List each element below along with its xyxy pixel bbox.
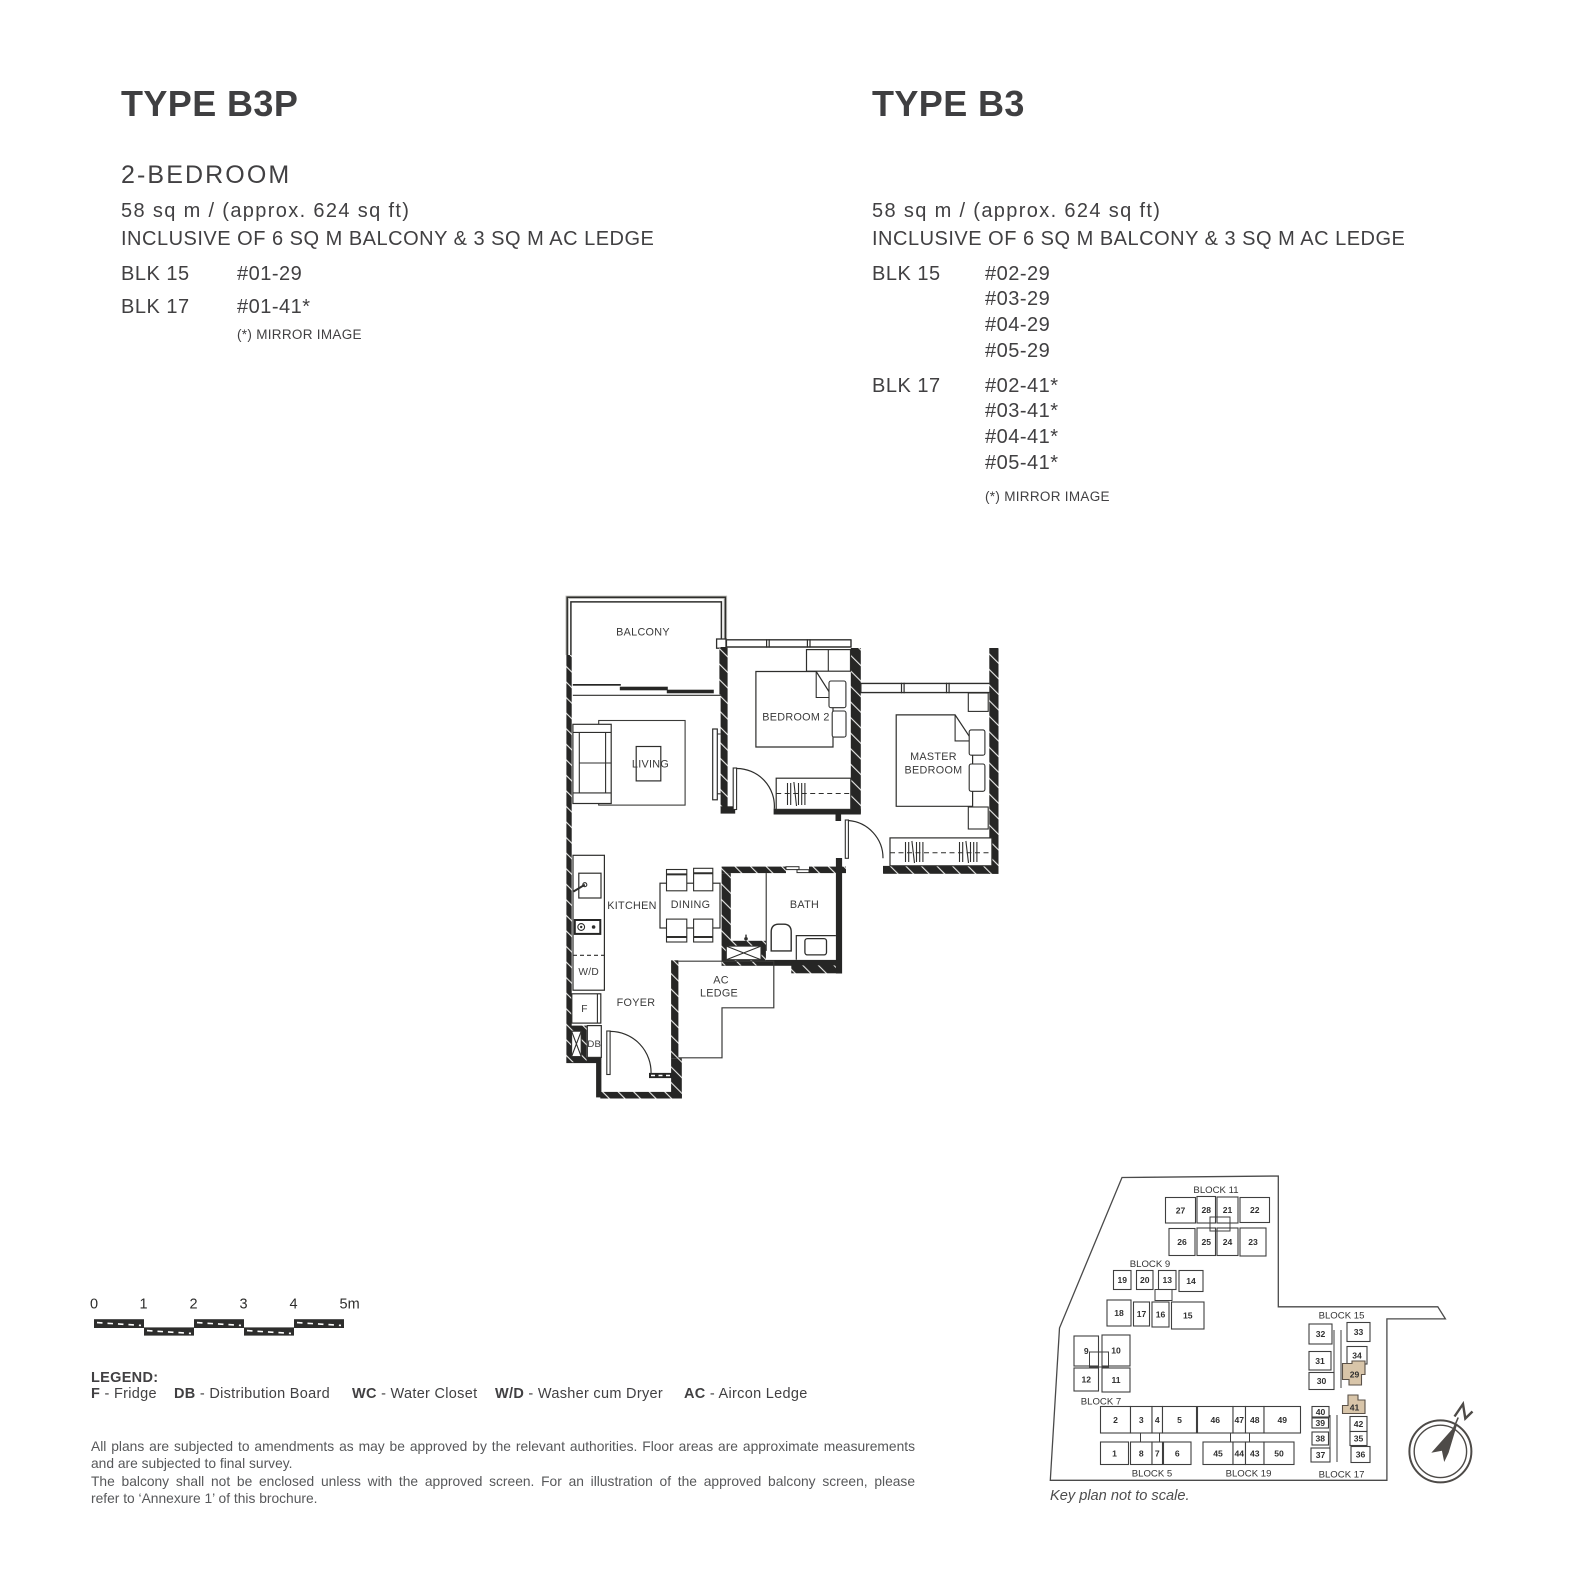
svg-text:37: 37 [1316,1450,1326,1460]
svg-text:3: 3 [1139,1415,1144,1425]
svg-text:0: 0 [90,1297,98,1313]
svg-text:14: 14 [1186,1276,1196,1286]
svg-text:5m: 5m [340,1297,360,1313]
svg-text:49: 49 [1277,1415,1287,1425]
svg-text:2: 2 [190,1297,198,1313]
svg-text:27: 27 [1176,1205,1186,1215]
svg-text:5: 5 [1177,1415,1182,1425]
svg-text:33: 33 [1354,1327,1364,1337]
svg-text:18: 18 [1114,1308,1124,1318]
svg-text:41: 41 [1350,1403,1360,1413]
svg-text:36: 36 [1356,1450,1366,1460]
svg-text:35: 35 [1354,1434,1364,1444]
svg-text:50: 50 [1274,1448,1284,1458]
svg-text:9: 9 [1084,1346,1089,1356]
svg-text:40: 40 [1316,1407,1326,1417]
svg-text:26: 26 [1177,1237,1187,1247]
svg-text:47: 47 [1234,1415,1244,1425]
svg-text:17: 17 [1137,1309,1147,1319]
svg-text:44: 44 [1234,1448,1244,1458]
svg-text:39: 39 [1315,1418,1325,1428]
svg-text:46: 46 [1210,1415,1220,1425]
svg-text:19: 19 [1117,1275,1127,1285]
svg-text:32: 32 [1316,1329,1326,1339]
svg-text:42: 42 [1354,1419,1364,1429]
svg-text:10: 10 [1111,1346,1121,1356]
svg-text:BLOCK 5: BLOCK 5 [1132,1469,1173,1480]
svg-text:4: 4 [1155,1415,1160,1425]
svg-text:1: 1 [1112,1448,1117,1458]
svg-text:23: 23 [1248,1237,1258,1247]
svg-text:BLOCK 7: BLOCK 7 [1081,1397,1122,1408]
svg-text:4: 4 [290,1297,298,1313]
svg-text:BLOCK 9: BLOCK 9 [1130,1259,1171,1270]
svg-text:2: 2 [1113,1415,1118,1425]
svg-text:34: 34 [1352,1350,1362,1360]
svg-text:25: 25 [1201,1237,1211,1247]
svg-text:12: 12 [1081,1375,1091,1385]
svg-text:45: 45 [1213,1448,1223,1458]
svg-text:3: 3 [240,1297,248,1313]
svg-text:1: 1 [140,1297,148,1313]
svg-text:28: 28 [1201,1205,1211,1215]
svg-text:24: 24 [1223,1237,1233,1247]
svg-text:29: 29 [1350,1370,1360,1380]
svg-text:11: 11 [1111,1375,1120,1385]
svg-text:22: 22 [1250,1205,1260,1215]
svg-text:38: 38 [1315,1434,1325,1444]
svg-text:43: 43 [1250,1448,1260,1458]
svg-text:7: 7 [1155,1448,1160,1458]
svg-text:BLOCK 19: BLOCK 19 [1226,1469,1272,1480]
svg-text:30: 30 [1317,1376,1327,1386]
svg-text:48: 48 [1250,1415,1260,1425]
svg-text:BLOCK 15: BLOCK 15 [1319,1311,1365,1322]
svg-text:13: 13 [1162,1275,1172,1285]
svg-text:BLOCK 11: BLOCK 11 [1193,1185,1238,1196]
svg-text:15: 15 [1183,1311,1193,1321]
svg-text:31: 31 [1315,1356,1325,1366]
svg-text:21: 21 [1223,1205,1233,1215]
svg-text:6: 6 [1175,1448,1180,1458]
svg-text:BLOCK 17: BLOCK 17 [1319,1470,1365,1481]
svg-text:20: 20 [1140,1275,1150,1285]
svg-text:8: 8 [1139,1448,1144,1458]
svg-text:16: 16 [1156,1310,1166,1320]
